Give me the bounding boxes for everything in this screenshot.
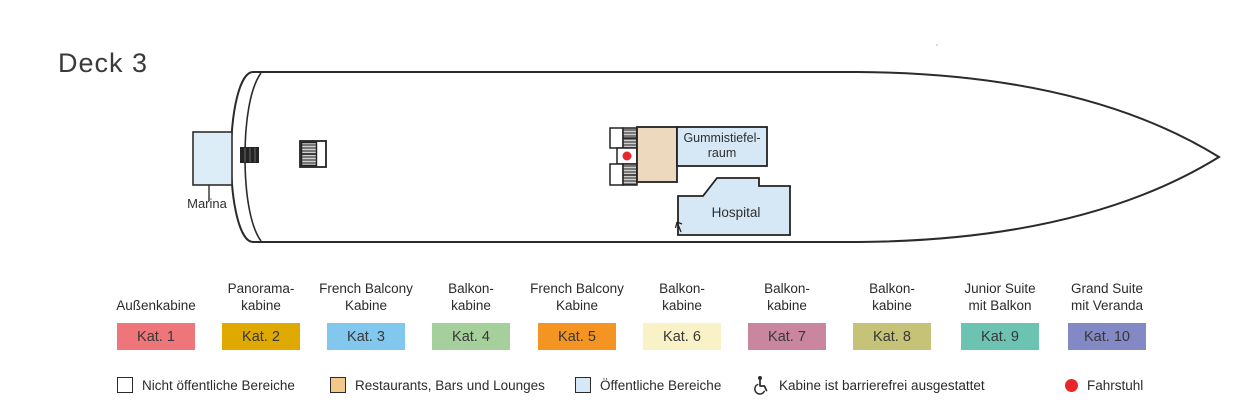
category-kat-6: Balkon-kabine Kat. 6	[627, 280, 737, 350]
legend-label: Nicht öffentliche Bereiche	[142, 378, 295, 393]
category-kat-5: French BalconyKabine Kat. 5	[522, 280, 632, 350]
legend-label: Kabine ist barrierefrei ausgestattet	[779, 378, 985, 393]
legend-item-elevator: Fahrstuhl	[1065, 375, 1143, 395]
hospital-label: Hospital	[693, 205, 779, 220]
category-name: Außenkabine	[116, 280, 196, 314]
legend-label: Restaurants, Bars und Lounges	[355, 378, 545, 393]
category-name: Balkon-kabine	[764, 280, 810, 314]
category-chip: Kat. 8	[853, 323, 931, 350]
wheelchair-icon	[752, 375, 770, 395]
category-kat-4: Balkon-kabine Kat. 4	[416, 280, 526, 350]
legend-label: Öffentliche Bereiche	[600, 378, 721, 393]
category-kat-7: Balkon-kabine Kat. 7	[732, 280, 842, 350]
public-swatch	[575, 377, 591, 393]
legend-item-restaurants: Restaurants, Bars und Lounges	[330, 375, 545, 395]
deck-plan-page: Deck 3	[0, 0, 1256, 410]
gummistiefelraum-label-line2: raum	[677, 146, 767, 161]
category-chip: Kat. 7	[748, 323, 826, 350]
category-kat-8: Balkon-kabine Kat. 8	[837, 280, 947, 350]
legend-item-non-public: Nicht öffentliche Bereiche	[117, 375, 295, 395]
elevator-legend-dot	[1065, 379, 1078, 392]
category-name: French BalconyKabine	[319, 280, 413, 314]
marina-room	[193, 132, 232, 185]
category-chip: Kat. 1	[117, 323, 195, 350]
category-chip: Kat. 3	[327, 323, 405, 350]
legend-label: Fahrstuhl	[1087, 378, 1143, 393]
category-chip: Kat. 4	[432, 323, 510, 350]
elevator-dot	[623, 152, 632, 161]
stairs-icon	[300, 141, 326, 167]
category-name: Junior Suitemit Balkon	[964, 280, 1035, 314]
ship-deck-drawing	[0, 0, 1256, 270]
category-chip: Kat. 10	[1068, 323, 1146, 350]
category-kat-2: Panorama-kabine Kat. 2	[206, 280, 316, 350]
category-chip: Kat. 9	[961, 323, 1039, 350]
category-kat-1: Außenkabine Kat. 1	[101, 280, 211, 350]
category-name: Balkon-kabine	[448, 280, 494, 314]
category-name: French BalconyKabine	[530, 280, 624, 314]
restaurant-swatch	[330, 377, 346, 393]
legend-item-accessible: Kabine ist barrierefrei ausgestattet	[752, 375, 985, 395]
gummistiefelraum-label: Gummistiefel- raum	[677, 131, 767, 161]
category-kat-9: Junior Suitemit Balkon Kat. 9	[945, 280, 1055, 350]
marina-label: Marina	[172, 196, 242, 211]
category-kat-3: French BalconyKabine Kat. 3	[311, 280, 421, 350]
stern-gangway	[240, 147, 259, 163]
category-name: Balkon-kabine	[659, 280, 705, 314]
category-chip: Kat. 2	[222, 323, 300, 350]
gummistiefelraum-label-line1: Gummistiefel-	[677, 131, 767, 146]
category-name: Grand Suitemit Veranda	[1071, 280, 1143, 314]
non-public-swatch	[117, 377, 133, 393]
legend-item-public: Öffentliche Bereiche	[575, 375, 721, 395]
restaurant-room	[637, 127, 677, 182]
category-name: Panorama-kabine	[228, 280, 295, 314]
category-kat-10: Grand Suitemit Veranda Kat. 10	[1052, 280, 1162, 350]
category-chip: Kat. 5	[538, 323, 616, 350]
category-name: Balkon-kabine	[869, 280, 915, 314]
category-chip: Kat. 6	[643, 323, 721, 350]
